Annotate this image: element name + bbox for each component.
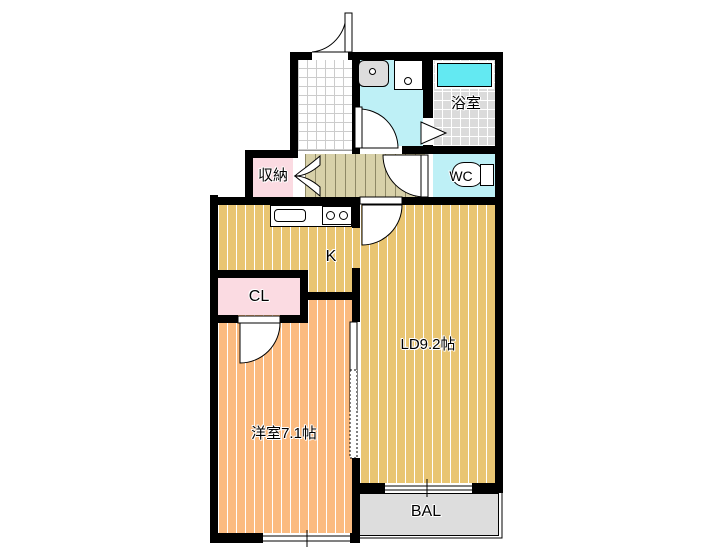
western-door-arc [240,323,280,363]
washroom-door-arc [359,109,398,148]
kitchen-label: K [318,247,344,267]
washroom-door-leaf [355,107,362,148]
ld-door-leaf [360,197,402,204]
wc-label: WC [444,166,478,186]
balcony-label: BAL [402,502,450,522]
storage-folding-door-lower [295,176,320,196]
doors-windows-overlay [0,0,710,550]
western-sliding-door-pocket [350,370,357,458]
floorplan: 浴室 WC 収納 K CL LD9.2帖 洋室7.1帖 BAL [0,0,710,550]
bathroom-label: 浴室 [438,94,494,114]
storage-label: 収納 [250,166,296,186]
entrance-door-arc [312,14,350,52]
living-dining-label: LD9.2帖 [390,335,466,355]
western-room-label: 洋室7.1帖 [240,424,328,444]
ld-window [385,483,472,493]
wc-door-leaf [421,155,428,197]
ld-door-arc [362,205,402,245]
bathroom-folding-door [421,122,446,144]
wc-door-arc [383,155,425,197]
closet-label: CL [240,287,278,307]
western-door-leaf [238,316,280,323]
storage-folding-door [295,156,320,176]
entrance-door-leaf [345,13,352,52]
